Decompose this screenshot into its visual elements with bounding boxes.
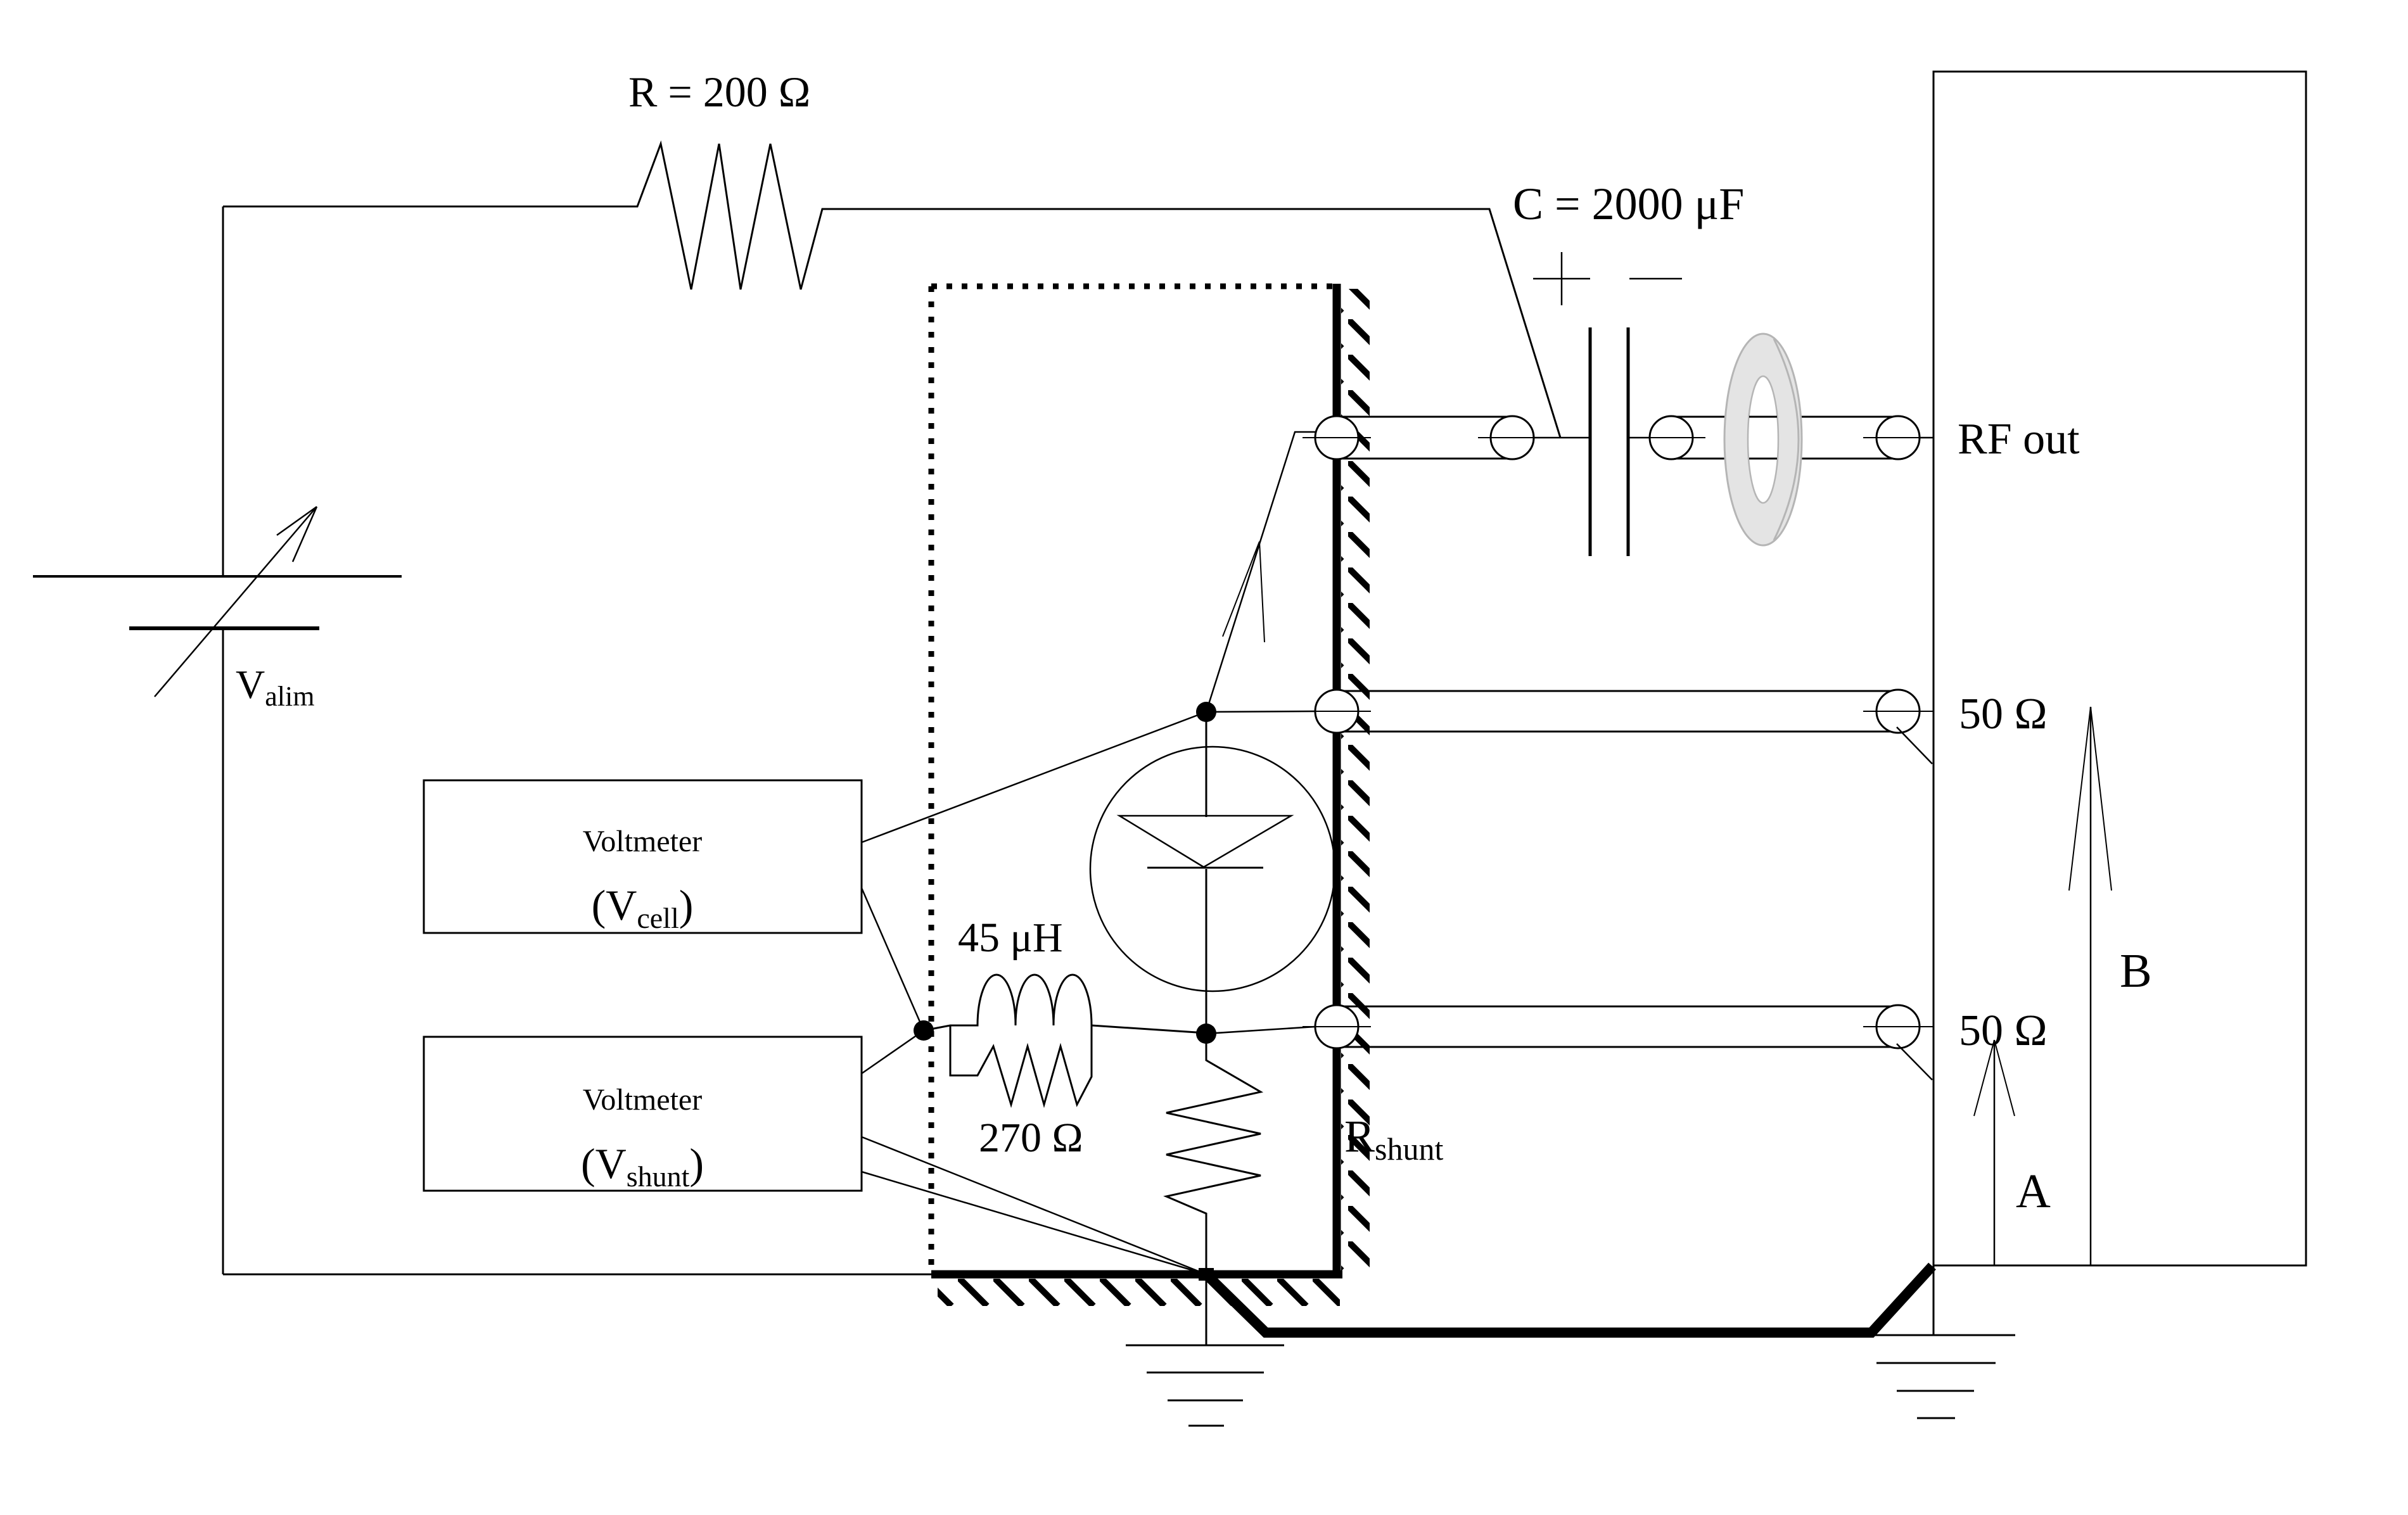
toroid-ferrite <box>1724 334 1802 545</box>
voltmeter-shunt-title: Voltmeter <box>583 1083 702 1117</box>
upper-load-feed-wire <box>1206 711 1315 712</box>
upper-load-label: 50 Ω <box>1959 690 2048 738</box>
probe-a-label: A <box>2016 1165 2051 1218</box>
voltmeter-cell-title: Voltmeter <box>583 825 702 858</box>
series-resistor-label: R = 200 Ω <box>628 68 810 116</box>
floor-hatching <box>938 1279 1340 1306</box>
parallel-resistor-label: 270 Ω <box>979 1115 1083 1161</box>
inductor-label: 45 μH <box>958 915 1063 961</box>
anode-node-icon <box>1196 702 1216 722</box>
voltmeter-shunt-box: Voltmeter (Vshunt) <box>424 1037 862 1193</box>
left-node-icon <box>914 1020 934 1041</box>
blocking-capacitor-label: C = 2000 μF <box>1513 179 1744 229</box>
voltmeter-cell-box: Voltmeter (Vcell) <box>424 780 862 934</box>
rf-out-label: RF out <box>1958 415 2080 464</box>
lower-load-label: 50 Ω <box>1959 1006 2048 1055</box>
circuit-diagram: Valim R = 200 Ω Voltmeter (Vcell) Voltme… <box>0 0 2408 1515</box>
probe-b-label: B <box>2120 944 2152 998</box>
toroid-hole-icon <box>1748 376 1778 503</box>
cathode-node-icon <box>1196 1024 1216 1044</box>
